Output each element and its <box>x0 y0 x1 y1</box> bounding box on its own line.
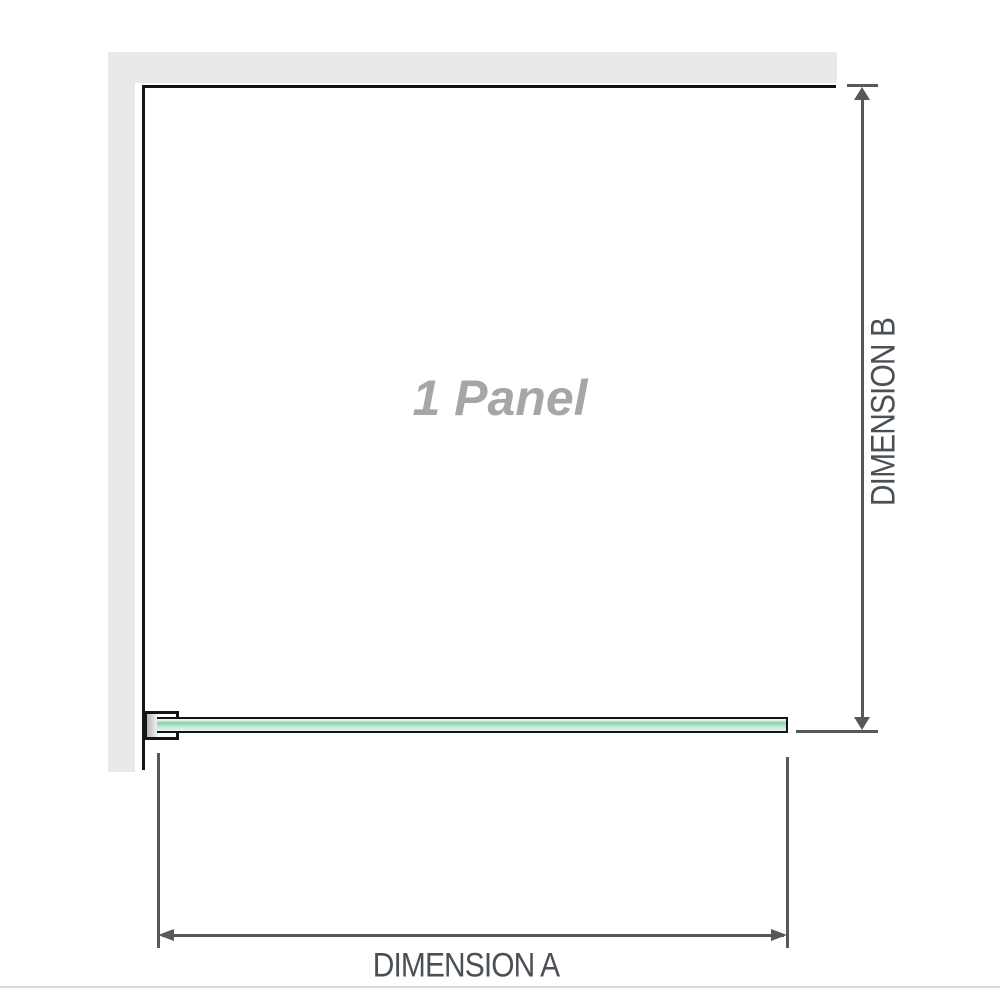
dimension-b-label: DIMENSION B <box>865 318 904 506</box>
arrow-up-icon <box>854 87 870 100</box>
arrow-left-icon <box>158 929 174 941</box>
wall-left-bar <box>108 52 135 772</box>
glass-panel <box>157 717 788 733</box>
shower-screen-diagram: 1 Panel DIMENSION B DIMENSION A <box>0 0 1000 1000</box>
arrow-down-icon <box>854 717 870 730</box>
page-divider <box>0 986 1000 988</box>
dimension-b-bottom-tick <box>796 730 878 733</box>
dimension-a-line <box>162 934 784 937</box>
panel-left-edge <box>142 85 145 770</box>
panel-count-label: 1 Panel <box>412 369 587 427</box>
dimension-a-left-extension <box>157 753 160 948</box>
arrow-right-icon <box>771 929 787 941</box>
dimension-a-label: DIMENSION A <box>373 947 560 986</box>
dimension-a-right-extension <box>786 757 789 948</box>
dimension-b-line <box>861 97 864 720</box>
wall-top-bar <box>108 52 837 83</box>
panel-top-edge <box>142 85 836 88</box>
